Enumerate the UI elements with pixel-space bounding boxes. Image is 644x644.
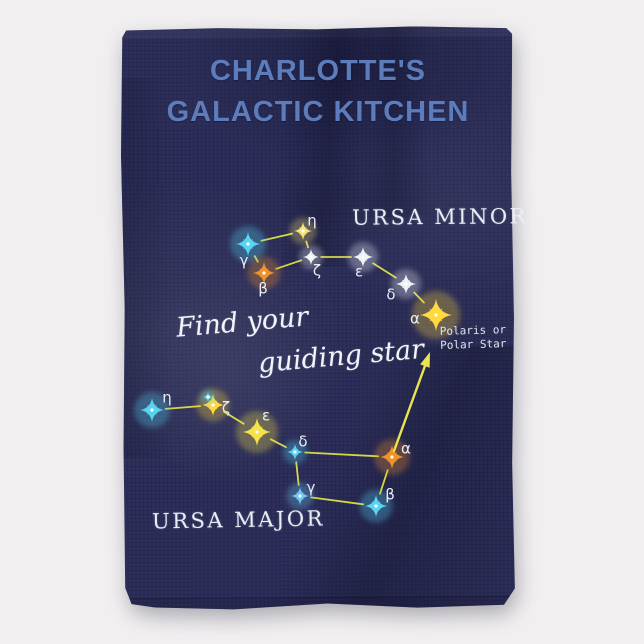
fabric-crease bbox=[241, 136, 472, 257]
ursa-minor-label: URSA MINOR bbox=[352, 204, 528, 230]
title-line1: CHARLOTTE'S bbox=[122, 51, 514, 92]
ursa-major-label: URSA MAJOR bbox=[152, 506, 325, 533]
towel-title: CHARLOTTE'S GALACTIC KITCHEN bbox=[122, 51, 514, 133]
title-line2: GALACTIC KITCHEN bbox=[122, 92, 514, 133]
polaris-note-line2: Polar Star bbox=[440, 337, 507, 353]
product-photo: CHARLOTTE'S GALACTIC KITCHEN ηγβζεδαηζεδ… bbox=[0, 0, 644, 644]
polaris-note: Polaris or Polar Star bbox=[440, 323, 507, 353]
